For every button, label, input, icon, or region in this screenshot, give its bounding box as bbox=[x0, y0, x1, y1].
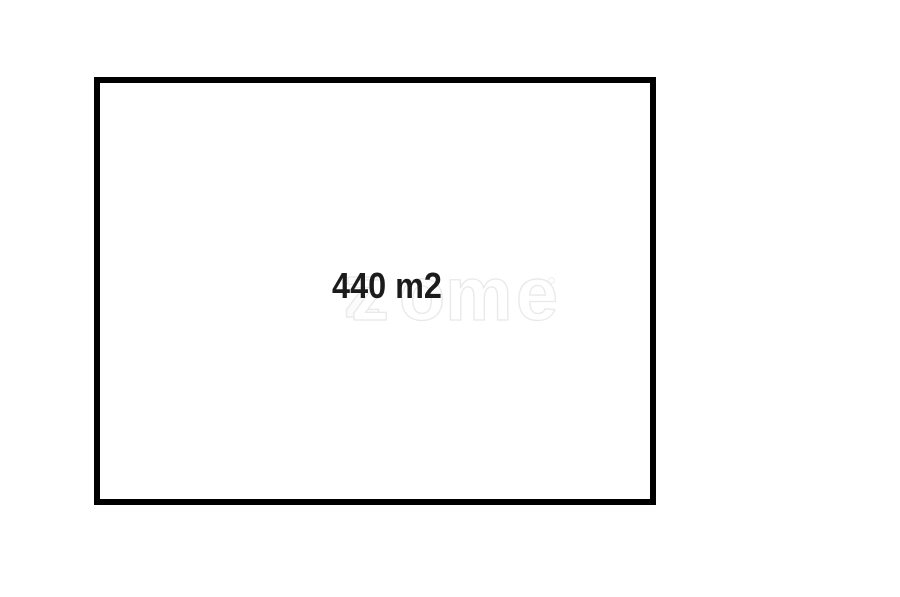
svg-text:m: m bbox=[445, 252, 512, 337]
svg-text:e: e bbox=[516, 252, 558, 337]
